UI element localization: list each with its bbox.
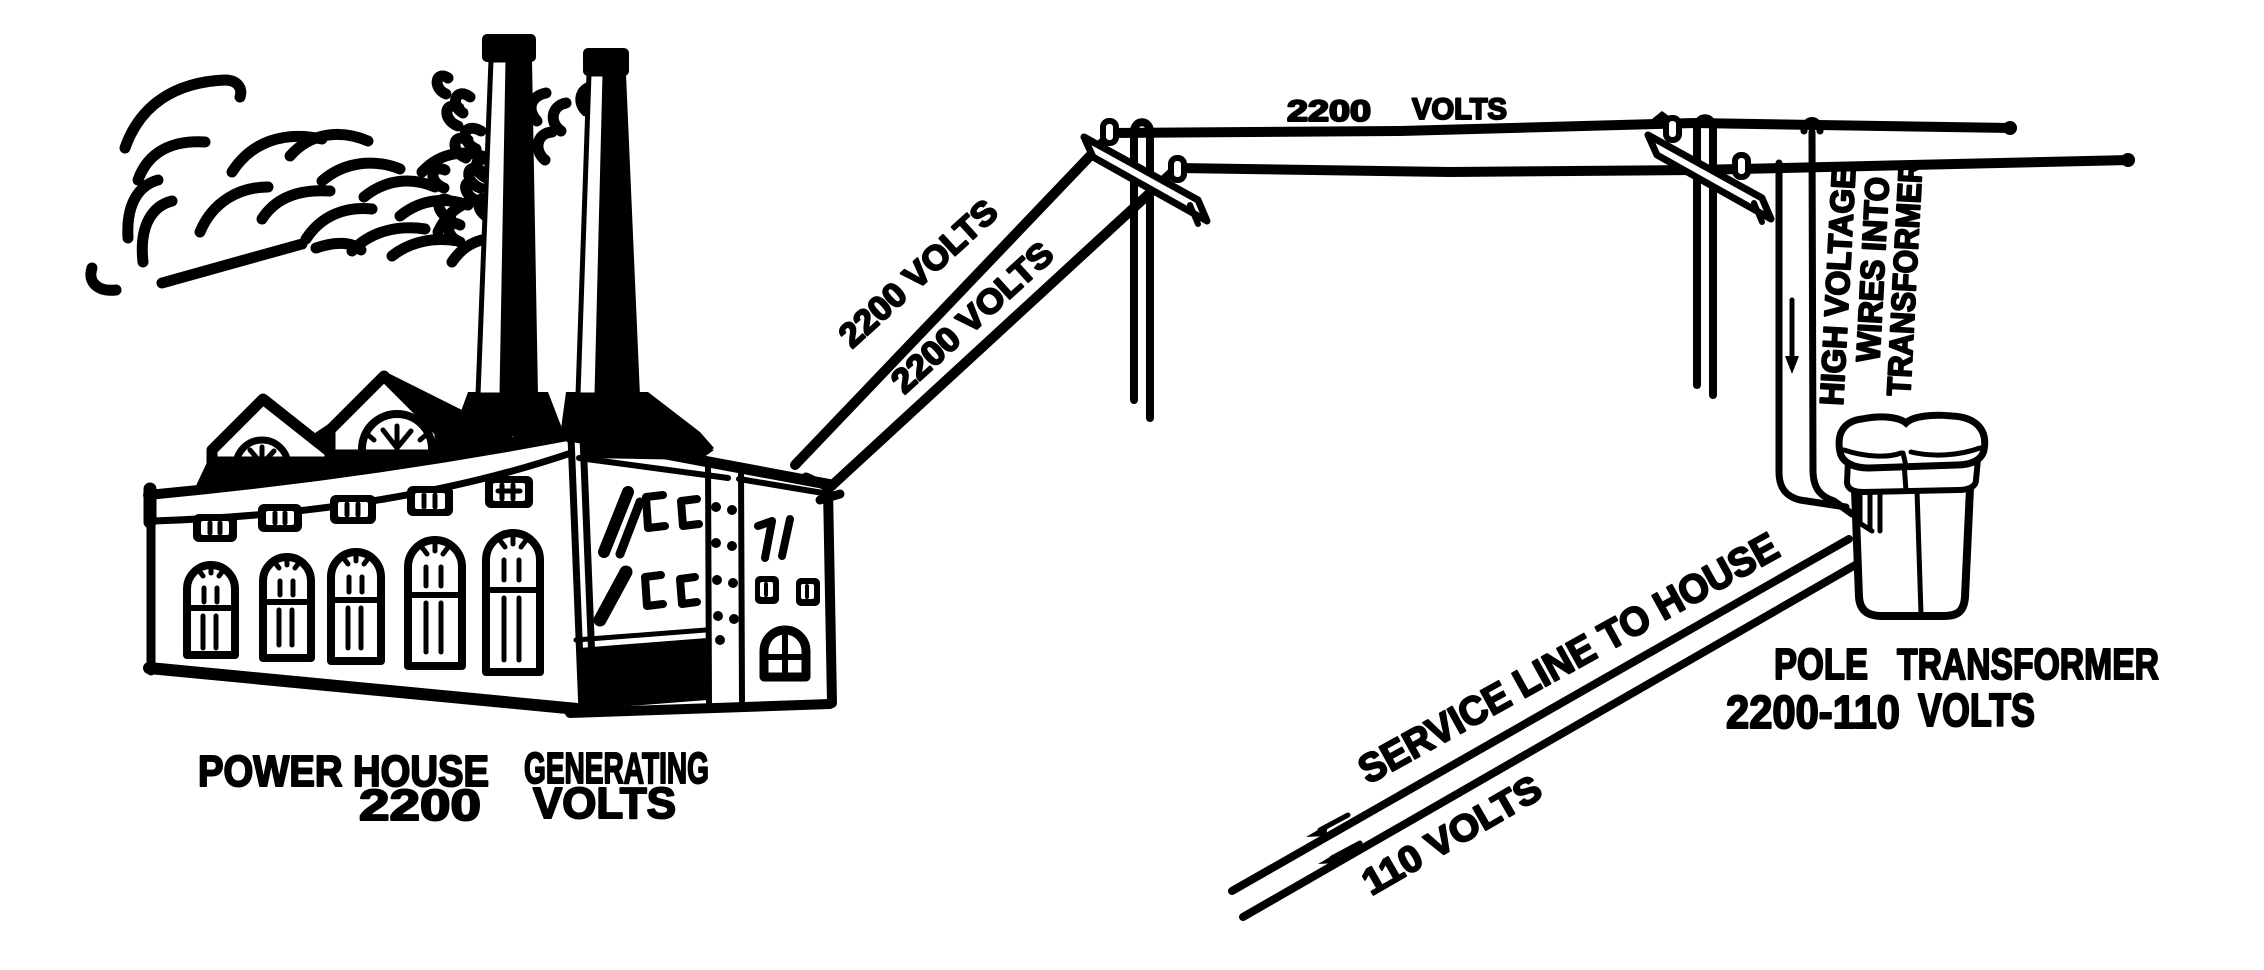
svg-text:2200: 2200 [359, 781, 481, 830]
svg-text:2200: 2200 [1287, 95, 1371, 128]
svg-text:TRANSFORMER: TRANSFORMER [1897, 640, 2159, 689]
svg-text:VOLTS: VOLTS [1918, 684, 2035, 736]
svg-text:VOLTS: VOLTS [533, 779, 676, 828]
svg-text:VOLTS: VOLTS [1412, 93, 1507, 126]
svg-text:2200-110: 2200-110 [1726, 686, 1900, 738]
svg-text:SERVICE LINE TO HOUSE: SERVICE LINE TO HOUSE [1351, 525, 1786, 793]
svg-text:POLE: POLE [1774, 640, 1868, 689]
